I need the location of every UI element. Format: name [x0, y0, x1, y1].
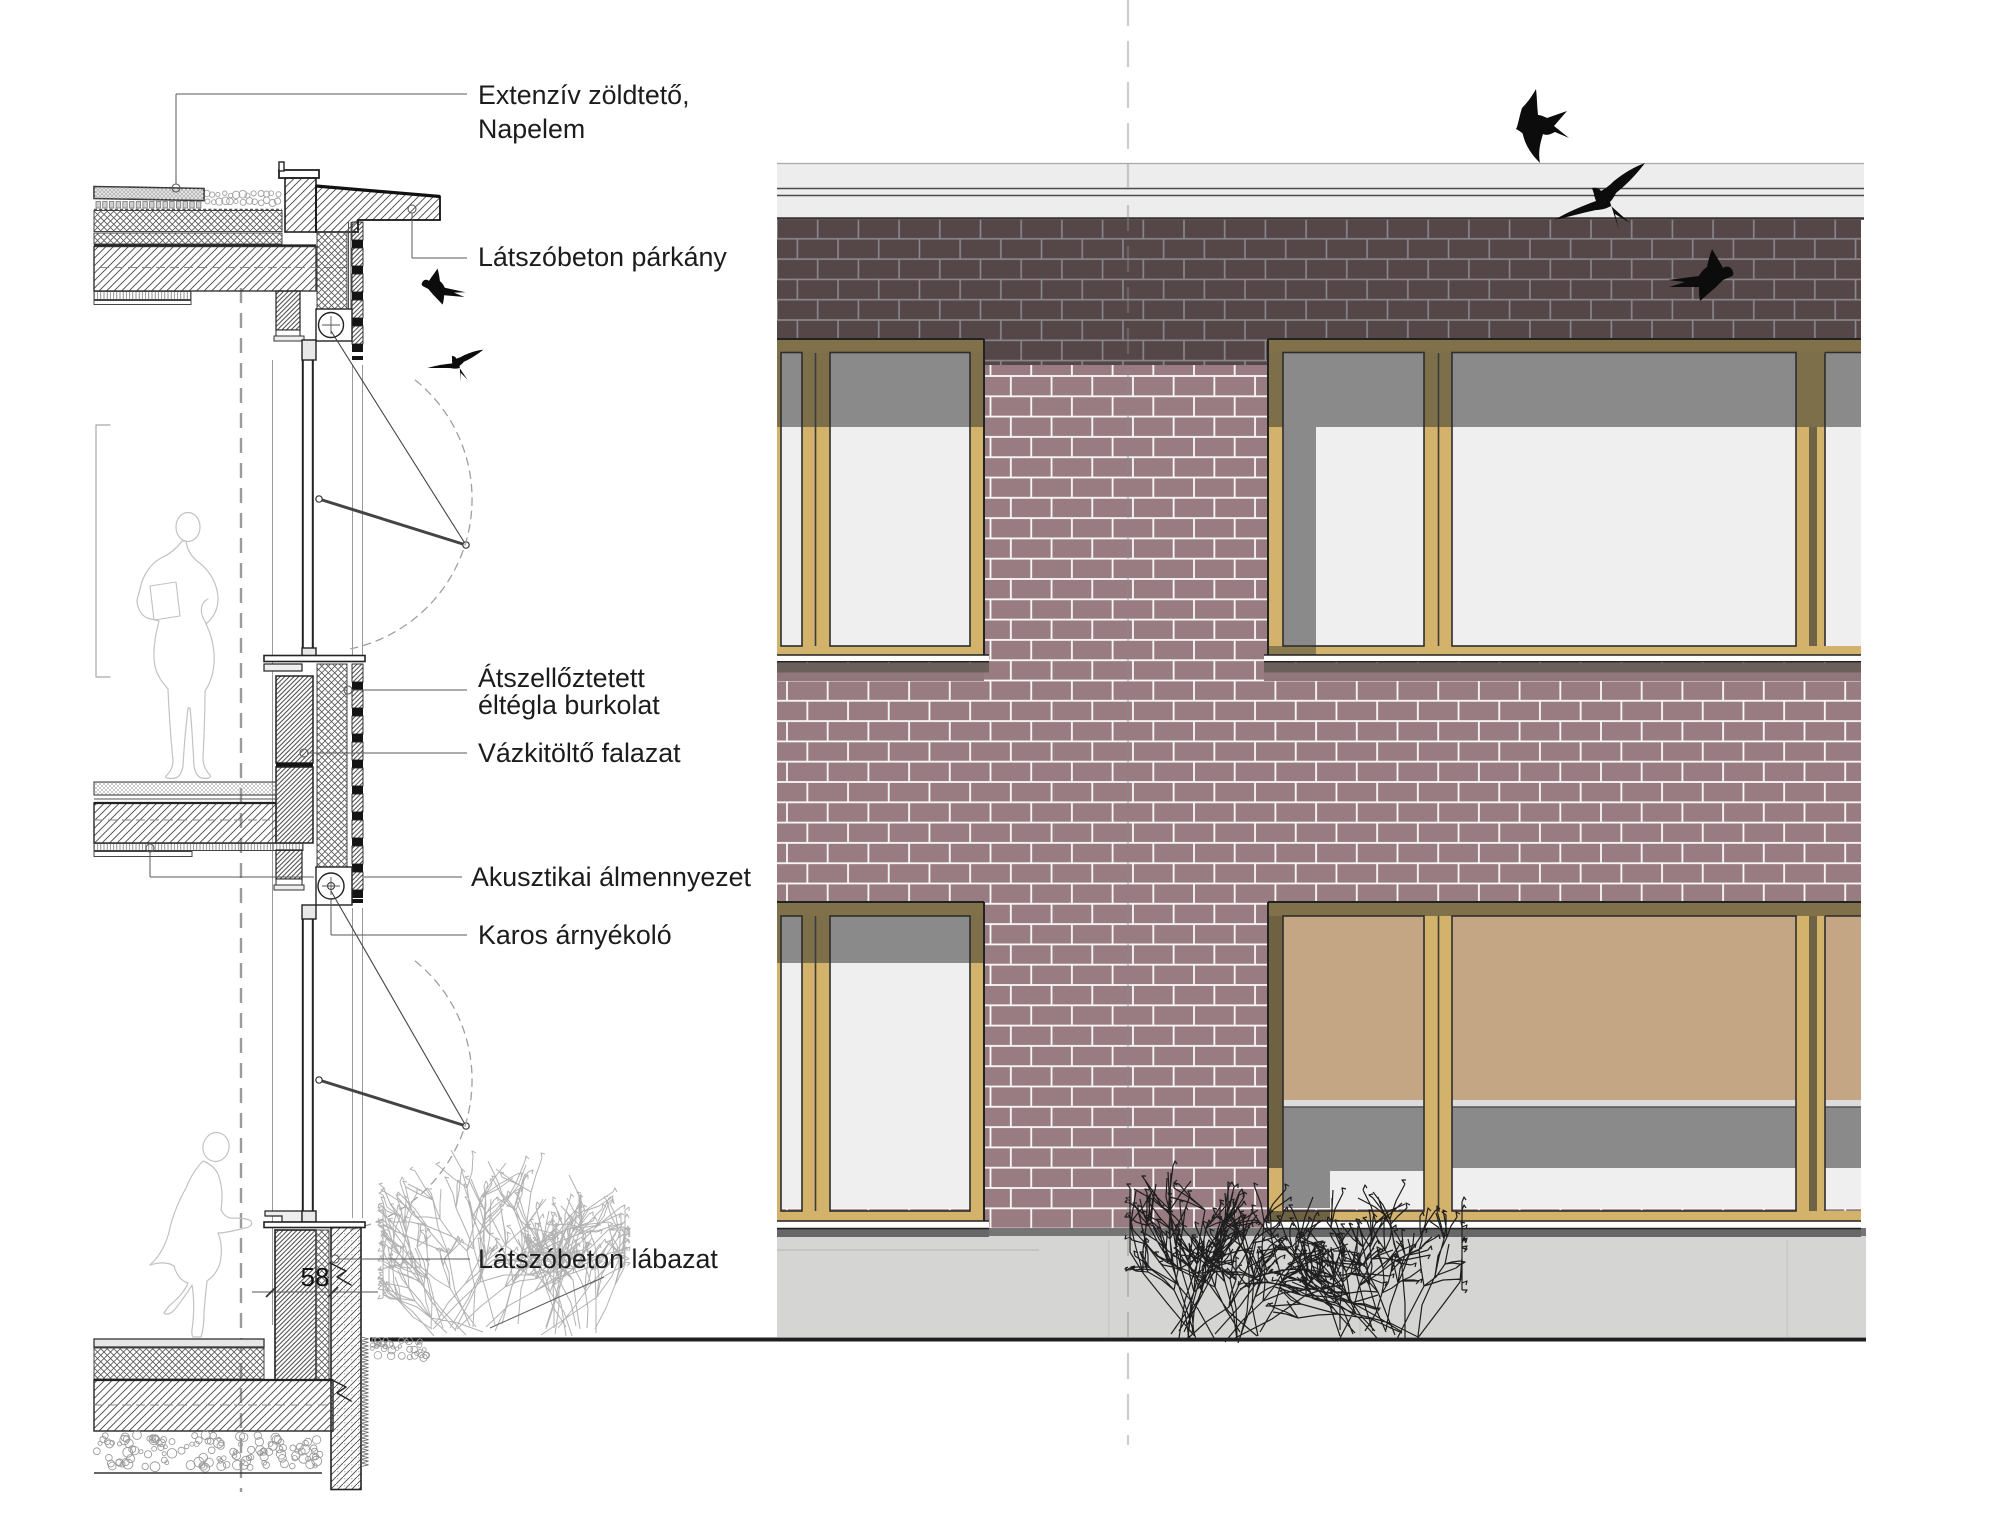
svg-text:Akusztikai álmennyezet: Akusztikai álmennyezet [471, 862, 752, 892]
svg-text:éltégla burkolat: éltégla burkolat [478, 690, 660, 720]
svg-text:Látszóbeton párkány: Látszóbeton párkány [478, 242, 727, 272]
svg-text:Átszellőztetett: Átszellőztetett [478, 663, 645, 693]
svg-text:58: 58 [301, 1262, 330, 1292]
svg-text:Extenzív zöldtető,: Extenzív zöldtető, [478, 80, 690, 110]
svg-text:Vázkitöltő falazat: Vázkitöltő falazat [478, 738, 681, 768]
svg-text:Napelem: Napelem [478, 114, 585, 144]
svg-text:Karos árnyékoló: Karos árnyékoló [478, 920, 672, 950]
svg-text:Látszóbeton lábazat: Látszóbeton lábazat [478, 1244, 718, 1274]
